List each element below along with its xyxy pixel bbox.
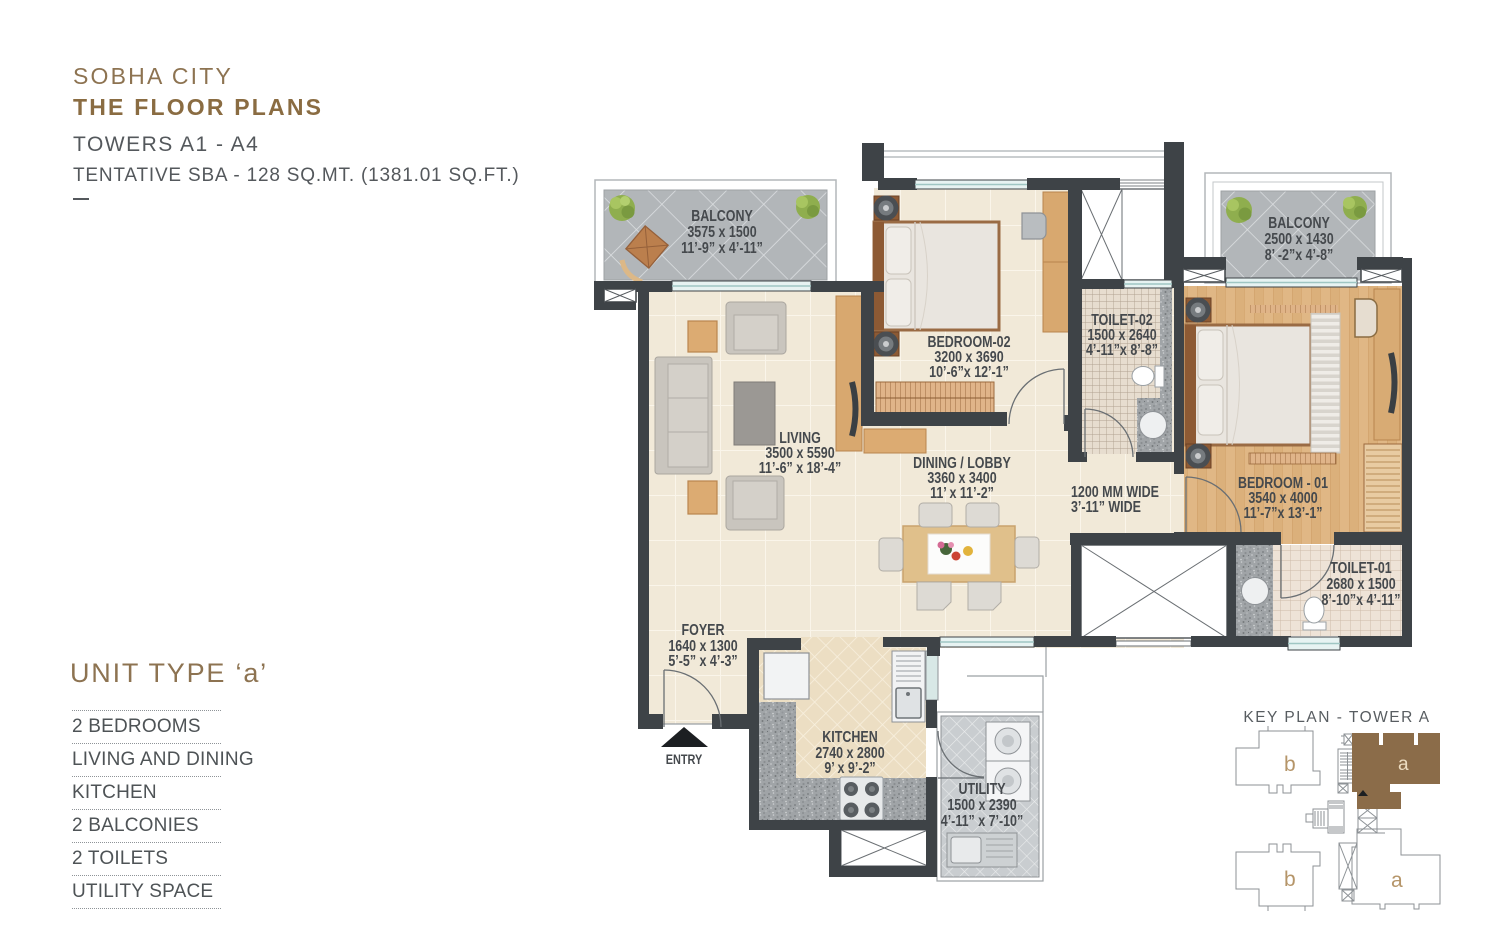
svg-text:ENTRY: ENTRY [666,752,703,768]
svg-text:4’-11”x 8’-8”: 4’-11”x 8’-8” [1086,342,1158,360]
svg-text:KEY PLAN - TOWER A: KEY PLAN - TOWER A [1243,709,1430,726]
svg-text:3’-11” WIDE: 3’-11” WIDE [1071,499,1141,517]
svg-text:a: a [1398,754,1409,775]
svg-text:8’ -2”x 4’-8”: 8’ -2”x 4’-8” [1265,247,1334,265]
svg-text:8’-10”x 4’-11”: 8’-10”x 4’-11” [1322,592,1401,610]
svg-text:11’ x 11’-2”: 11’ x 11’-2” [930,485,994,503]
svg-text:11’-7”x 13’-1”: 11’-7”x 13’-1” [1244,505,1323,523]
svg-text:5’-5” x 4’-3”: 5’-5” x 4’-3” [668,653,737,671]
svg-text:11’-9” x 4’-11”: 11’-9” x 4’-11” [681,240,763,258]
svg-text:11’-6” x 18’-4”: 11’-6” x 18’-4” [759,460,841,478]
svg-text:a: a [1391,869,1403,892]
svg-text:b: b [1284,753,1296,776]
svg-text:9’ x 9’-2”: 9’ x 9’-2” [824,760,875,778]
svg-text:10’-6”x 12’-1”: 10’-6”x 12’-1” [929,364,1009,382]
svg-text:b: b [1284,868,1296,891]
svg-text:4’-11” x 7’-10”: 4’-11” x 7’-10” [941,813,1023,831]
